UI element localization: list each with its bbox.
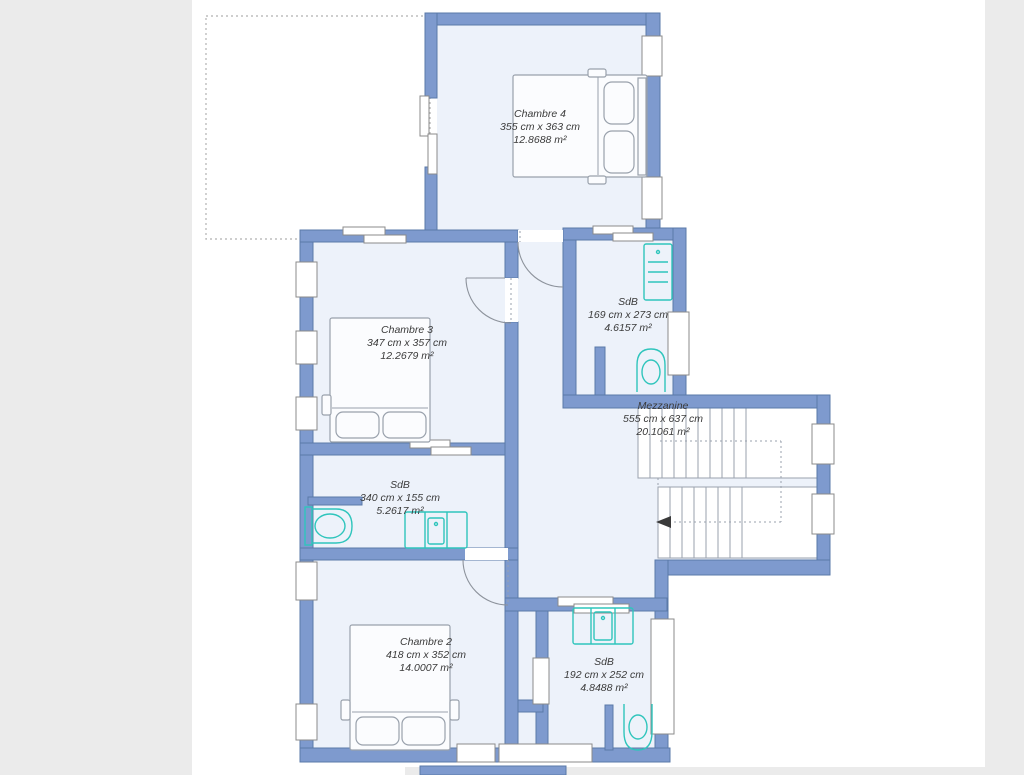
bed-chambre3-icon[interactable] bbox=[322, 318, 430, 442]
room-floor-sdb-top[interactable] bbox=[576, 240, 673, 398]
floor-below-outline bbox=[206, 16, 430, 239]
bed-chambre4-icon[interactable] bbox=[513, 69, 647, 184]
floorplan-canvas bbox=[0, 0, 1024, 775]
door-sdb-bottom[interactable] bbox=[533, 658, 549, 704]
bed-chambre2-icon[interactable] bbox=[341, 625, 459, 750]
